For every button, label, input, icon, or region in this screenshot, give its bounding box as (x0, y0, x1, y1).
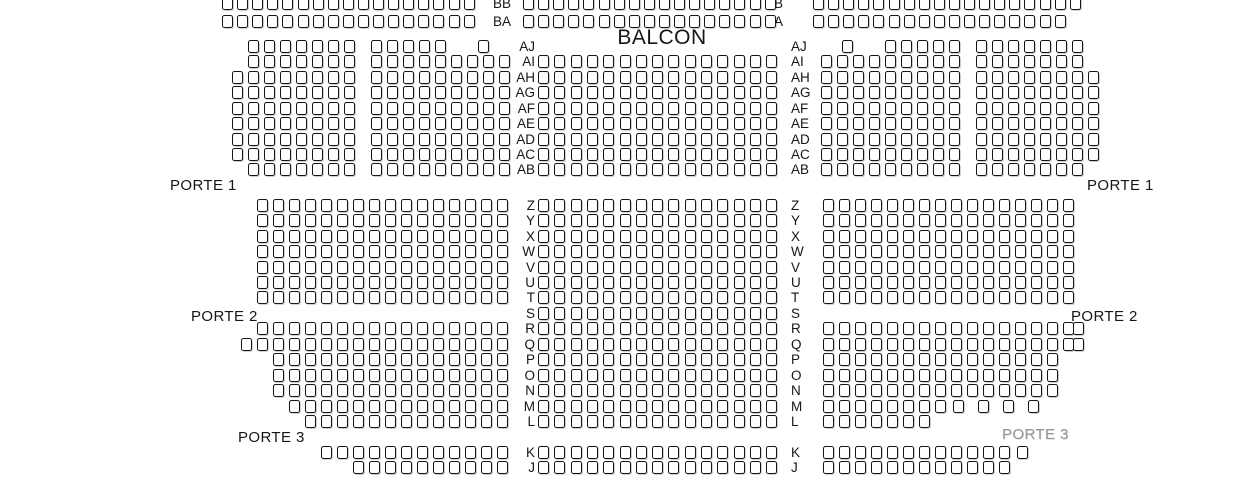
seat[interactable] (289, 384, 300, 397)
seat[interactable] (620, 291, 631, 304)
seat[interactable] (280, 102, 291, 115)
seat[interactable] (417, 261, 428, 274)
seat[interactable] (451, 102, 462, 115)
seat[interactable] (734, 55, 745, 68)
seat[interactable] (1015, 369, 1026, 382)
seat[interactable] (668, 369, 679, 382)
seat[interactable] (449, 214, 460, 227)
seat[interactable] (373, 0, 384, 10)
seat[interactable] (403, 117, 414, 130)
seat[interactable] (433, 214, 444, 227)
seat[interactable] (901, 148, 912, 161)
seat[interactable] (766, 400, 777, 413)
seat[interactable] (855, 230, 866, 243)
seat[interactable] (483, 86, 494, 99)
seat[interactable] (305, 199, 316, 212)
seat[interactable] (837, 117, 848, 130)
seat[interactable] (481, 230, 492, 243)
seat[interactable] (1063, 245, 1074, 258)
seat[interactable] (321, 369, 332, 382)
seat[interactable] (858, 15, 869, 28)
seat[interactable] (296, 71, 307, 84)
seat[interactable] (1031, 384, 1042, 397)
seat[interactable] (964, 15, 975, 28)
seat[interactable] (571, 338, 582, 351)
seat[interactable] (417, 338, 428, 351)
seat[interactable] (385, 384, 396, 397)
seat[interactable] (839, 276, 850, 289)
seat[interactable] (685, 353, 696, 366)
seat[interactable] (571, 415, 582, 428)
seat[interactable] (917, 133, 928, 146)
seat[interactable] (1088, 117, 1099, 130)
seat[interactable] (497, 369, 508, 382)
seat[interactable] (871, 230, 882, 243)
seat[interactable] (587, 369, 598, 382)
seat[interactable] (417, 415, 428, 428)
seat[interactable] (750, 230, 761, 243)
seat[interactable] (267, 0, 278, 10)
seat[interactable] (499, 148, 510, 161)
seat[interactable] (464, 15, 475, 28)
seat[interactable] (280, 55, 291, 68)
seat[interactable] (871, 384, 882, 397)
seat[interactable] (983, 461, 994, 474)
seat[interactable] (992, 133, 1003, 146)
seat[interactable] (837, 133, 848, 146)
seat[interactable] (1047, 353, 1058, 366)
seat[interactable] (248, 148, 259, 161)
seat[interactable] (887, 353, 898, 366)
seat[interactable] (652, 400, 663, 413)
seat[interactable] (465, 400, 476, 413)
seat[interactable] (418, 15, 429, 28)
seat[interactable] (433, 353, 444, 366)
seat[interactable] (571, 461, 582, 474)
seat[interactable] (674, 15, 685, 28)
seat[interactable] (935, 461, 946, 474)
seat[interactable] (344, 117, 355, 130)
seat[interactable] (465, 199, 476, 212)
seat[interactable] (280, 163, 291, 176)
seat[interactable] (1088, 102, 1099, 115)
seat[interactable] (369, 415, 380, 428)
seat[interactable] (701, 291, 712, 304)
seat[interactable] (999, 276, 1010, 289)
seat[interactable] (1024, 117, 1035, 130)
seat[interactable] (652, 384, 663, 397)
seat[interactable] (353, 353, 364, 366)
seat[interactable] (280, 40, 291, 53)
seat[interactable] (839, 461, 850, 474)
seat[interactable] (734, 353, 745, 366)
seat[interactable] (232, 102, 243, 115)
seat[interactable] (449, 338, 460, 351)
seat[interactable] (1009, 15, 1020, 28)
seat[interactable] (887, 446, 898, 459)
seat[interactable] (571, 230, 582, 243)
seat[interactable] (353, 230, 364, 243)
seat[interactable] (855, 415, 866, 428)
seat[interactable] (1063, 261, 1074, 274)
seat[interactable] (401, 322, 412, 335)
seat[interactable] (750, 86, 761, 99)
seat[interactable] (497, 230, 508, 243)
seat[interactable] (766, 291, 777, 304)
seat[interactable] (839, 322, 850, 335)
seat[interactable] (497, 338, 508, 351)
seat[interactable] (734, 15, 745, 28)
seat[interactable] (435, 148, 446, 161)
seat[interactable] (554, 148, 565, 161)
seat[interactable] (417, 369, 428, 382)
seat[interactable] (553, 0, 564, 10)
seat[interactable] (371, 55, 382, 68)
seat[interactable] (449, 230, 460, 243)
seat[interactable] (620, 261, 631, 274)
seat[interactable] (887, 291, 898, 304)
seat[interactable] (935, 384, 946, 397)
seat[interactable] (371, 163, 382, 176)
seat[interactable] (499, 133, 510, 146)
seat[interactable] (1040, 15, 1051, 28)
seat[interactable] (401, 276, 412, 289)
seat[interactable] (451, 86, 462, 99)
seat[interactable] (328, 71, 339, 84)
seat[interactable] (328, 86, 339, 99)
seat[interactable] (401, 400, 412, 413)
seat[interactable] (280, 71, 291, 84)
seat[interactable] (976, 148, 987, 161)
seat[interactable] (636, 307, 647, 320)
seat[interactable] (587, 102, 598, 115)
seat[interactable] (869, 55, 880, 68)
seat[interactable] (1056, 163, 1067, 176)
seat[interactable] (337, 214, 348, 227)
seat[interactable] (571, 133, 582, 146)
seat[interactable] (717, 86, 728, 99)
seat[interactable] (435, 86, 446, 99)
seat[interactable] (821, 163, 832, 176)
seat[interactable] (978, 400, 989, 413)
seat[interactable] (992, 40, 1003, 53)
seat[interactable] (321, 261, 332, 274)
seat[interactable] (659, 0, 670, 10)
seat[interactable] (999, 369, 1010, 382)
seat[interactable] (979, 15, 990, 28)
seat[interactable] (652, 261, 663, 274)
seat[interactable] (717, 276, 728, 289)
seat[interactable] (828, 0, 839, 10)
seat[interactable] (652, 133, 663, 146)
seat[interactable] (465, 415, 476, 428)
seat[interactable] (353, 199, 364, 212)
seat[interactable] (903, 276, 914, 289)
seat[interactable] (685, 307, 696, 320)
seat[interactable] (385, 199, 396, 212)
seat[interactable] (919, 214, 930, 227)
seat[interactable] (538, 214, 549, 227)
seat[interactable] (353, 400, 364, 413)
seat[interactable] (823, 369, 834, 382)
seat[interactable] (889, 15, 900, 28)
seat[interactable] (717, 55, 728, 68)
seat[interactable] (369, 461, 380, 474)
seat[interactable] (652, 102, 663, 115)
seat[interactable] (821, 133, 832, 146)
seat[interactable] (282, 0, 293, 10)
seat[interactable] (903, 446, 914, 459)
seat[interactable] (636, 291, 647, 304)
seat[interactable] (999, 245, 1010, 258)
seat[interactable] (919, 245, 930, 258)
seat[interactable] (685, 446, 696, 459)
seat[interactable] (668, 307, 679, 320)
seat[interactable] (603, 307, 614, 320)
seat[interactable] (949, 15, 960, 28)
seat[interactable] (451, 71, 462, 84)
seat[interactable] (636, 322, 647, 335)
seat[interactable] (587, 353, 598, 366)
seat[interactable] (750, 369, 761, 382)
seat[interactable] (321, 400, 332, 413)
seat[interactable] (312, 102, 323, 115)
seat[interactable] (853, 163, 864, 176)
seat[interactable] (935, 199, 946, 212)
seat[interactable] (620, 400, 631, 413)
seat[interactable] (571, 307, 582, 320)
seat[interactable] (419, 71, 430, 84)
seat[interactable] (967, 353, 978, 366)
seat[interactable] (837, 102, 848, 115)
seat[interactable] (823, 230, 834, 243)
seat[interactable] (371, 86, 382, 99)
seat[interactable] (467, 117, 478, 130)
seat[interactable] (823, 415, 834, 428)
seat[interactable] (481, 369, 492, 382)
seat[interactable] (766, 307, 777, 320)
seat[interactable] (571, 261, 582, 274)
seat[interactable] (273, 353, 284, 366)
seat[interactable] (337, 384, 348, 397)
seat[interactable] (467, 55, 478, 68)
seat[interactable] (935, 353, 946, 366)
seat[interactable] (369, 446, 380, 459)
seat[interactable] (273, 384, 284, 397)
seat[interactable] (685, 400, 696, 413)
seat[interactable] (289, 291, 300, 304)
seat[interactable] (903, 338, 914, 351)
seat[interactable] (701, 261, 712, 274)
seat[interactable] (554, 307, 565, 320)
seat[interactable] (933, 148, 944, 161)
seat[interactable] (976, 102, 987, 115)
seat[interactable] (369, 384, 380, 397)
seat[interactable] (967, 245, 978, 258)
seat[interactable] (1015, 276, 1026, 289)
seat[interactable] (873, 15, 884, 28)
seat[interactable] (1015, 291, 1026, 304)
seat[interactable] (701, 415, 712, 428)
seat[interactable] (289, 230, 300, 243)
seat[interactable] (839, 446, 850, 459)
seat[interactable] (843, 15, 854, 28)
seat[interactable] (465, 291, 476, 304)
seat[interactable] (644, 0, 655, 10)
seat[interactable] (853, 148, 864, 161)
seat[interactable] (1008, 117, 1019, 130)
seat[interactable] (433, 400, 444, 413)
seat[interactable] (289, 276, 300, 289)
seat[interactable] (855, 353, 866, 366)
seat[interactable] (264, 86, 275, 99)
seat[interactable] (248, 163, 259, 176)
seat[interactable] (652, 245, 663, 258)
seat[interactable] (951, 322, 962, 335)
seat[interactable] (296, 117, 307, 130)
seat[interactable] (935, 230, 946, 243)
seat[interactable] (701, 86, 712, 99)
seat[interactable] (976, 86, 987, 99)
seat[interactable] (483, 163, 494, 176)
seat[interactable] (903, 461, 914, 474)
seat[interactable] (620, 148, 631, 161)
seat[interactable] (620, 307, 631, 320)
seat[interactable] (433, 415, 444, 428)
seat[interactable] (571, 214, 582, 227)
seat[interactable] (636, 71, 647, 84)
seat[interactable] (465, 446, 476, 459)
seat[interactable] (766, 214, 777, 227)
seat[interactable] (385, 353, 396, 366)
seat[interactable] (587, 55, 598, 68)
seat[interactable] (417, 384, 428, 397)
seat[interactable] (523, 15, 534, 28)
seat[interactable] (992, 71, 1003, 84)
seat[interactable] (554, 384, 565, 397)
seat[interactable] (823, 276, 834, 289)
seat[interactable] (337, 415, 348, 428)
seat[interactable] (571, 102, 582, 115)
seat[interactable] (734, 338, 745, 351)
seat[interactable] (273, 369, 284, 382)
seat[interactable] (451, 55, 462, 68)
seat[interactable] (821, 148, 832, 161)
seat[interactable] (337, 369, 348, 382)
seat[interactable] (903, 245, 914, 258)
seat[interactable] (385, 446, 396, 459)
seat[interactable] (369, 245, 380, 258)
seat[interactable] (855, 261, 866, 274)
seat[interactable] (1008, 40, 1019, 53)
seat[interactable] (298, 15, 309, 28)
seat[interactable] (603, 163, 614, 176)
seat[interactable] (871, 353, 882, 366)
seat[interactable] (903, 353, 914, 366)
seat[interactable] (1031, 322, 1042, 335)
seat[interactable] (1072, 133, 1083, 146)
seat[interactable] (248, 117, 259, 130)
seat[interactable] (668, 261, 679, 274)
seat[interactable] (273, 276, 284, 289)
seat[interactable] (949, 71, 960, 84)
seat[interactable] (919, 384, 930, 397)
seat[interactable] (571, 199, 582, 212)
seat[interactable] (433, 0, 444, 10)
seat[interactable] (869, 163, 880, 176)
seat[interactable] (433, 461, 444, 474)
seat[interactable] (855, 338, 866, 351)
seat[interactable] (652, 353, 663, 366)
seat[interactable] (701, 446, 712, 459)
seat[interactable] (603, 400, 614, 413)
seat[interactable] (871, 446, 882, 459)
seat[interactable] (620, 86, 631, 99)
seat[interactable] (387, 133, 398, 146)
seat[interactable] (1056, 117, 1067, 130)
seat[interactable] (903, 369, 914, 382)
seat[interactable] (717, 117, 728, 130)
seat[interactable] (813, 15, 824, 28)
seat[interactable] (636, 446, 647, 459)
seat[interactable] (885, 148, 896, 161)
seat[interactable] (701, 400, 712, 413)
seat[interactable] (636, 133, 647, 146)
seat[interactable] (1024, 40, 1035, 53)
seat[interactable] (587, 230, 598, 243)
seat[interactable] (734, 102, 745, 115)
seat[interactable] (321, 291, 332, 304)
seat[interactable] (1008, 102, 1019, 115)
seat[interactable] (483, 133, 494, 146)
seat[interactable] (1028, 400, 1039, 413)
seat[interactable] (1015, 199, 1026, 212)
seat[interactable] (1008, 163, 1019, 176)
seat[interactable] (321, 384, 332, 397)
seat[interactable] (433, 446, 444, 459)
seat[interactable] (839, 291, 850, 304)
seat[interactable] (828, 15, 839, 28)
seat[interactable] (903, 400, 914, 413)
seat[interactable] (620, 163, 631, 176)
seat[interactable] (839, 415, 850, 428)
seat[interactable] (358, 15, 369, 28)
seat[interactable] (871, 291, 882, 304)
seat[interactable] (312, 133, 323, 146)
seat[interactable] (887, 461, 898, 474)
seat[interactable] (734, 400, 745, 413)
seat[interactable] (417, 245, 428, 258)
seat[interactable] (935, 276, 946, 289)
seat[interactable] (481, 214, 492, 227)
seat[interactable] (701, 230, 712, 243)
seat[interactable] (499, 163, 510, 176)
seat[interactable] (636, 261, 647, 274)
seat[interactable] (371, 133, 382, 146)
seat[interactable] (403, 86, 414, 99)
seat[interactable] (999, 214, 1010, 227)
seat[interactable] (871, 369, 882, 382)
seat[interactable] (904, 15, 915, 28)
seat[interactable] (652, 322, 663, 335)
seat[interactable] (264, 133, 275, 146)
seat[interactable] (620, 415, 631, 428)
seat[interactable] (401, 415, 412, 428)
seat[interactable] (328, 102, 339, 115)
seat[interactable] (821, 86, 832, 99)
seat[interactable] (1056, 102, 1067, 115)
seat[interactable] (903, 199, 914, 212)
